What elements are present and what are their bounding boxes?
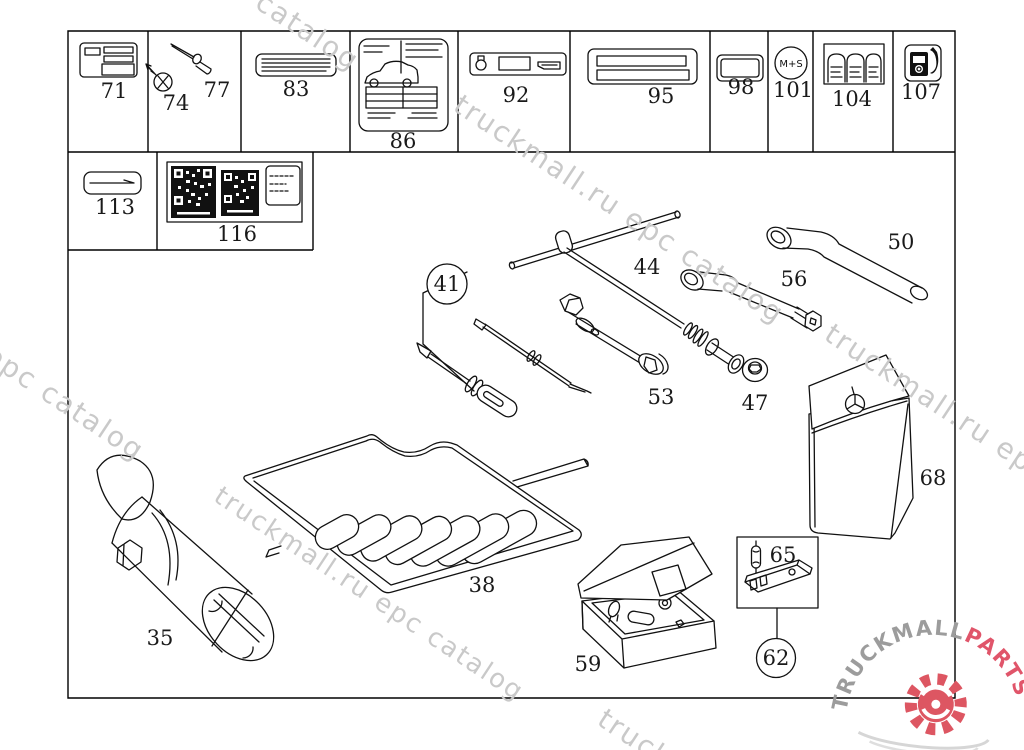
part-label-50: 50: [888, 230, 915, 254]
part-labels: 71 74 77 83 86 92 95 98 101 104 107 113 …: [95, 75, 946, 676]
part-label-53: 53: [648, 385, 675, 409]
part-47-socket: [743, 359, 768, 382]
part-label-113: 113: [95, 195, 135, 219]
part-label-104: 104: [832, 87, 872, 111]
part-71-data-card: [80, 43, 137, 77]
part-86-document: [359, 39, 448, 131]
part-95-plate: [588, 49, 697, 84]
part-label-116: 116: [217, 222, 257, 246]
part-92-strip: [470, 53, 566, 75]
part-label-95: 95: [648, 84, 675, 108]
part-116-qr-labels: [167, 162, 302, 222]
part-label-65: 65: [770, 543, 797, 567]
part-107-fuel-label: [905, 45, 941, 81]
part-label-92: 92: [503, 83, 530, 107]
part-label-86: 86: [390, 129, 417, 153]
part-label-35: 35: [147, 626, 174, 650]
part-label-71: 71: [101, 79, 128, 103]
part-label-62: 62: [763, 646, 790, 670]
part-101-ms-badge: M+S: [775, 47, 807, 79]
part-44-t-wrench: [509, 210, 747, 376]
part-74-screw: [146, 64, 172, 91]
part-label-77: 77: [204, 78, 231, 102]
part-label-38: 38: [469, 573, 496, 597]
part-113-plate: [84, 172, 141, 194]
legend-grid: [68, 31, 955, 698]
part-104-tags: [824, 44, 884, 84]
part-label-44: 44: [634, 255, 661, 279]
diagram-canvas: M+S: [0, 0, 1024, 750]
logo-suffix-text: PARTS: [956, 622, 1024, 702]
part-label-101: 101: [773, 78, 813, 102]
part-label-98: 98: [728, 75, 755, 99]
parts-catalog-page: M+S: [0, 0, 1024, 750]
ms-badge-text: M+S: [779, 59, 802, 70]
part-label-47: 47: [742, 391, 769, 415]
part-77-rivet: [171, 44, 211, 74]
part-53-socket-adapter: [560, 294, 668, 378]
part-38-tool-roll: [244, 435, 588, 593]
part-label-74: 74: [163, 91, 190, 115]
part-68-pouch: [809, 355, 913, 539]
part-59-bulb-box: [578, 537, 716, 668]
gear-icon: [903, 672, 968, 737]
part-label-59: 59: [575, 652, 602, 676]
part-label-41: 41: [434, 272, 461, 296]
part-83-plate: [256, 54, 336, 76]
truckmall-logo: TRUCKMALLPARTS: [824, 605, 1024, 750]
part-label-68: 68: [920, 466, 947, 490]
part-label-107: 107: [901, 80, 941, 104]
part-label-56: 56: [781, 267, 808, 291]
part-label-83: 83: [283, 77, 310, 101]
